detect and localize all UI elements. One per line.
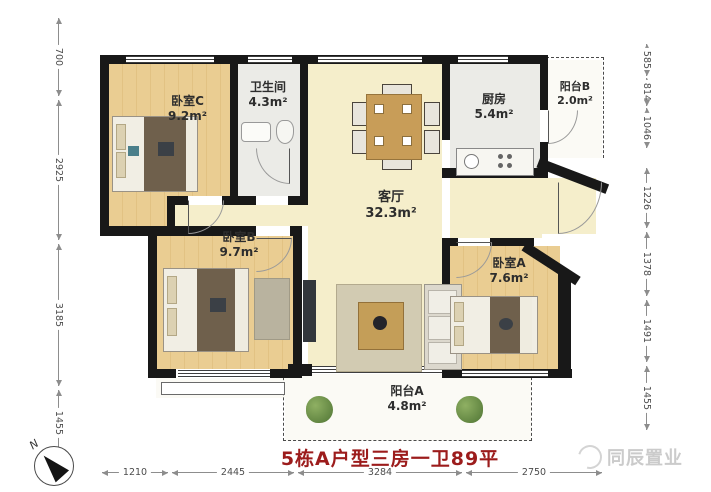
dimension-left: 3185 — [58, 244, 59, 386]
plant — [456, 396, 483, 423]
dimension-right: 1455 — [646, 366, 647, 430]
wall-segment — [288, 364, 312, 376]
dimension-bottom: 1210 — [102, 472, 168, 473]
watermark-logo-icon — [574, 441, 607, 474]
plan-title: 5栋A户型三房一卫89平 — [225, 444, 555, 471]
washbasin — [241, 122, 271, 142]
dimension-bottom: 2445 — [172, 472, 294, 473]
window — [126, 56, 214, 63]
window — [462, 370, 548, 377]
room-label-living: 客厅 32.3m² — [350, 190, 432, 223]
floor-entry-corridor — [450, 176, 542, 238]
tv-cabinet — [303, 280, 316, 342]
plant — [306, 396, 333, 423]
wall-segment — [288, 196, 300, 205]
blanket-fold — [186, 117, 197, 191]
room-label-bedroom-b: 卧室B 9.7m² — [198, 230, 280, 260]
stove-burner-icon — [498, 163, 503, 168]
stove-burner-icon — [507, 154, 512, 159]
dimension-right: 1378 — [646, 232, 647, 296]
dimension-right: 1046 — [646, 108, 647, 148]
wall-segment — [293, 226, 302, 378]
wall-segment — [490, 238, 534, 246]
room-label-balcony-b: 阳台B 2.0m² — [548, 80, 602, 108]
wall-segment — [300, 55, 308, 205]
stove-burner-icon — [498, 154, 503, 159]
room-label-bedroom-c: 卧室C 9.2m² — [140, 94, 235, 124]
dimension-bottom: 2750 — [466, 472, 602, 473]
room-label-kitchen: 厨房 5.4m² — [458, 92, 530, 122]
dimension-bottom: 3284 — [298, 472, 462, 473]
bedroom-b-rug — [254, 278, 290, 340]
dimension-left: 700 — [58, 18, 59, 96]
blanket-fold — [235, 269, 248, 351]
plate — [374, 104, 384, 114]
window — [248, 56, 292, 63]
plate — [402, 136, 412, 146]
coffee-table-deco — [373, 316, 387, 330]
stove-burner-icon — [507, 163, 512, 168]
compass-north-label: N — [27, 437, 41, 452]
window — [178, 370, 270, 377]
dining-chair — [424, 130, 440, 154]
room-label-balcony-a: 阳台A 4.8m² — [366, 384, 448, 414]
sink-icon — [464, 154, 479, 169]
wall-segment — [558, 272, 571, 378]
blanket-fold — [520, 297, 532, 353]
dining-chair — [424, 102, 440, 126]
toilet — [276, 120, 294, 144]
pillow — [454, 302, 464, 322]
plate — [402, 104, 412, 114]
wall-segment — [540, 55, 548, 110]
window — [458, 56, 508, 63]
pillow — [116, 124, 126, 150]
watermark-text: 同辰置业 — [607, 444, 683, 470]
bed-deco — [128, 146, 139, 156]
wall-segment — [148, 226, 157, 378]
bed-tray — [158, 142, 174, 156]
pillow — [167, 308, 177, 336]
floor-bedroom-c — [109, 196, 167, 226]
room-label-bedroom-a: 卧室A 7.6m² — [468, 256, 550, 286]
dimension-right: 814 — [646, 78, 647, 106]
watermark: 同辰置业 — [578, 444, 683, 470]
dimension-right: 585 — [646, 44, 647, 76]
pillow — [454, 326, 464, 346]
floor-plan-image: 卧室C 9.2m² 卫生间 4.3m² 厨房 5.4m² 阳台B 2.0m² 客… — [0, 0, 711, 492]
dimension-right: 1491 — [646, 300, 647, 362]
pillow — [116, 152, 126, 178]
window — [318, 56, 422, 63]
wall-segment — [230, 55, 238, 205]
bed-tray — [210, 298, 226, 312]
wall-segment — [230, 196, 256, 205]
bay-window-frame — [161, 382, 285, 395]
wall-segment — [100, 55, 109, 236]
pillow — [167, 276, 177, 304]
bed-tray — [499, 318, 513, 330]
wall-segment — [175, 196, 188, 205]
plate — [374, 136, 384, 146]
room-label-bathroom: 卫生间 4.3m² — [232, 80, 304, 110]
dimension-right: 1226 — [646, 168, 647, 228]
wall-segment — [442, 55, 450, 140]
dimension-left: 2925 — [58, 100, 59, 240]
wall-segment — [148, 369, 176, 378]
